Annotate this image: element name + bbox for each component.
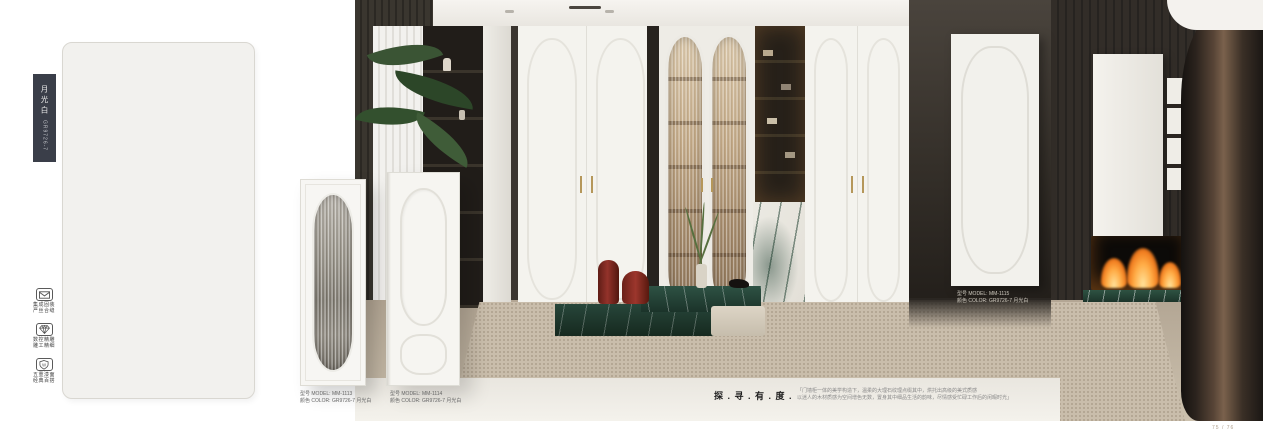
gold-handle <box>701 178 703 192</box>
gold-handle <box>711 178 713 192</box>
product-label-mm-1115: 型号 MODEL: MM-1115 颜色 COLOR: GR9726-7 月光白 <box>957 291 1028 304</box>
feature-badge: W 五重漆面 经典百搭 <box>18 358 70 384</box>
gold-handle <box>591 176 593 193</box>
bird-sculpture <box>729 279 749 288</box>
gold-handle <box>862 176 864 193</box>
arch-molding-large <box>400 188 447 326</box>
wardrobe-door <box>858 26 910 314</box>
feature-label: 雕工精细 <box>18 344 70 350</box>
fluted-glass-door <box>709 34 749 306</box>
door-panel-sample <box>62 42 255 399</box>
gold-handle <box>851 176 853 193</box>
flame <box>1101 258 1127 288</box>
shield-icon: W <box>36 358 53 371</box>
description-line: 「门墙柜一体的美学构造下，温柔的大理石纹理点缀其中，烘托出高级的美式质感 <box>797 388 1017 395</box>
fireplace-firebox <box>1091 236 1189 290</box>
color-text: 颜色 COLOR: GR9726-7 月光白 <box>300 398 371 405</box>
wardrobe-arched-doors-left <box>518 26 654 312</box>
envelope-icon <box>36 288 53 301</box>
catalog-page: 月光白 GR9726-7 集成固装 严丝合缝 数控精雕 雕工精细 W 五重漆面 … <box>0 0 1263 444</box>
feature-badge: 数控精雕 雕工精细 <box>18 323 70 349</box>
gold-handle <box>580 176 582 193</box>
feature-badge: 集成固装 严丝合缝 <box>18 288 70 314</box>
interior-photo: 型号 MODEL: MM-1115 颜色 COLOR: GR9726-7 月光白 <box>355 0 1263 421</box>
wardrobe-door <box>587 26 655 312</box>
description-line: 以迷人的木材质感为空间增色无数，置身其中细品生活的韵味，尽情感受忙碌工作后的闲暇… <box>797 395 1017 402</box>
bronze-column <box>1181 10 1263 421</box>
white-pillar <box>483 26 511 326</box>
white-ceiling-soffit <box>1167 0 1263 30</box>
description-paragraph: 「门墙柜一体的美学构造下，温柔的大理石纹理点缀其中，烘托出高级的美式质感 以迷人… <box>797 388 1017 402</box>
product-door-mm-1114 <box>386 172 460 386</box>
display-door-mm-1115 <box>951 34 1039 286</box>
wardrobe-door <box>518 26 587 312</box>
red-side-table-short <box>622 271 649 304</box>
shelf-decor <box>459 110 465 120</box>
ceiling-spotlight <box>605 10 614 13</box>
vase <box>696 264 707 288</box>
green-marble-hearth <box>1083 290 1195 302</box>
color-swatch-tag: 月光白 GR9726-7 <box>33 74 56 162</box>
feature-badges: 集成固装 严丝合缝 数控精雕 雕工精细 W 五重漆面 经典百搭 <box>18 288 70 393</box>
shelf-decor <box>443 58 451 71</box>
red-side-table-tall <box>598 260 619 304</box>
product-label-mm-1113: 型号 MODEL: MM-1113 颜色 COLOR: GR9726-7 月光白 <box>300 391 371 404</box>
flame <box>1159 262 1181 288</box>
ottoman <box>711 306 765 336</box>
diamond-icon <box>36 323 53 336</box>
page-number: 75 / 76 <box>1212 425 1234 431</box>
feature-label: 严丝合缝 <box>18 309 70 315</box>
svg-text:W: W <box>42 362 46 367</box>
ceiling-spotlight <box>505 10 514 13</box>
marble-chest <box>753 202 807 308</box>
swatch-name: 月光白 <box>39 85 50 117</box>
fluted-glass-cabinet <box>659 26 755 314</box>
fireplace-chimney <box>1093 54 1163 236</box>
wardrobe-arched-doors-right <box>805 26 909 314</box>
shelf-books <box>763 50 773 56</box>
color-text: 颜色 COLOR: GR9726-7 月光白 <box>390 398 461 405</box>
color-text: 颜色 COLOR: GR9726-7 月光白 <box>957 298 1028 305</box>
wardrobe-door <box>805 26 858 314</box>
ceiling-light-slot <box>569 6 601 9</box>
feature-label: 经典百搭 <box>18 379 70 385</box>
product-label-mm-1114: 型号 MODEL: MM-1114 颜色 COLOR: GR9726-7 月光白 <box>390 391 461 404</box>
flame <box>1127 248 1159 288</box>
swatch-code: GR9726-7 <box>42 120 48 151</box>
fluted-glass-arch-panel <box>312 193 354 372</box>
wall-recess <box>647 26 659 312</box>
tagline: 探 . 寻 . 有 . 度 . <box>714 389 793 402</box>
product-door-mm-1113 <box>300 179 366 386</box>
arch-molding-small <box>400 334 447 375</box>
